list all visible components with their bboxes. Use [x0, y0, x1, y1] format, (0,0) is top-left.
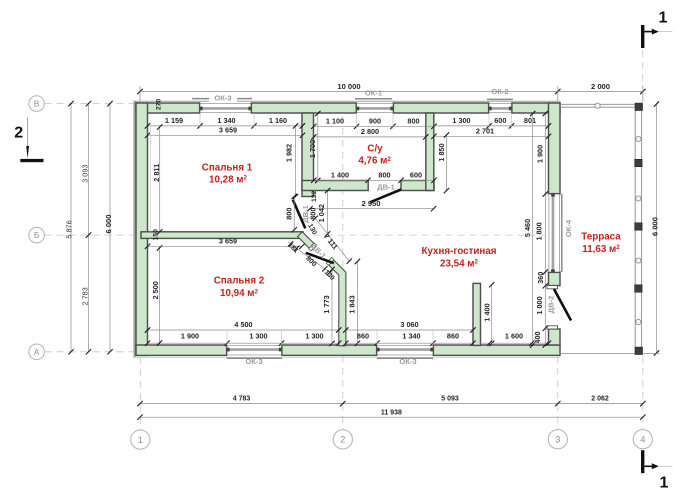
svg-text:ОК-4: ОК-4 [564, 219, 573, 237]
svg-text:800: 800 [285, 208, 294, 220]
svg-text:ОК-3: ОК-3 [245, 357, 262, 366]
svg-text:1 100: 1 100 [326, 116, 344, 125]
svg-text:1 300: 1 300 [452, 116, 470, 125]
svg-text:1 700: 1 700 [308, 140, 317, 158]
svg-text:ДВ-2: ДВ-2 [547, 296, 556, 314]
svg-text:5 460: 5 460 [523, 219, 532, 237]
svg-text:150: 150 [153, 229, 160, 241]
svg-text:1 982: 1 982 [284, 144, 293, 162]
svg-text:1 159: 1 159 [165, 116, 183, 125]
svg-text:1 400: 1 400 [331, 171, 349, 180]
svg-text:2 950: 2 950 [361, 199, 380, 208]
svg-text:1 042: 1 042 [317, 204, 326, 222]
svg-text:11,63 м2: 11,63 м2 [582, 244, 620, 255]
svg-text:ОК-3: ОК-3 [399, 357, 416, 366]
svg-text:1: 1 [659, 10, 668, 27]
svg-text:2: 2 [14, 125, 23, 142]
svg-text:ОК-1: ОК-1 [365, 88, 383, 97]
svg-text:1 800: 1 800 [534, 222, 543, 240]
svg-text:860: 860 [357, 331, 369, 340]
svg-text:10 000: 10 000 [337, 82, 360, 91]
svg-text:1 600: 1 600 [505, 331, 523, 340]
svg-text:5 093: 5 093 [441, 396, 459, 403]
svg-text:1 340: 1 340 [402, 331, 420, 340]
svg-text:900: 900 [369, 116, 381, 125]
svg-text:Кухня-гостиная: Кухня-гостиная [421, 246, 496, 257]
svg-text:11 938: 11 938 [381, 409, 402, 416]
svg-text:ДВ-1: ДВ-1 [377, 182, 395, 191]
svg-text:4,76 м2: 4,76 м2 [358, 156, 391, 167]
svg-text:1 850: 1 850 [437, 143, 446, 161]
svg-text:23,54 м2: 23,54 м2 [440, 258, 479, 269]
svg-text:600: 600 [494, 116, 506, 125]
svg-text:800: 800 [407, 116, 419, 125]
svg-text:А: А [34, 347, 40, 357]
svg-text:1: 1 [138, 435, 143, 445]
svg-text:2 500: 2 500 [151, 281, 160, 299]
svg-text:4 783: 4 783 [233, 396, 251, 403]
svg-text:270: 270 [155, 99, 162, 111]
svg-text:С/у: С/у [367, 143, 383, 154]
svg-text:1 300: 1 300 [305, 331, 323, 340]
svg-text:800: 800 [378, 171, 390, 180]
svg-text:10,94 м2: 10,94 м2 [220, 288, 259, 299]
svg-text:600: 600 [410, 171, 422, 180]
svg-text:1 900: 1 900 [181, 331, 199, 340]
svg-text:Спальня 2: Спальня 2 [214, 276, 265, 287]
svg-text:ОК-3: ОК-3 [214, 94, 231, 103]
svg-text:В: В [34, 99, 40, 109]
svg-text:1 340: 1 340 [217, 116, 235, 125]
svg-text:2 000: 2 000 [591, 82, 610, 91]
svg-text:1 000: 1 000 [535, 296, 544, 314]
svg-text:132: 132 [311, 190, 318, 202]
svg-text:1 773: 1 773 [322, 295, 331, 313]
svg-text:2 811: 2 811 [152, 164, 161, 182]
svg-text:400: 400 [533, 331, 542, 343]
svg-text:2 701: 2 701 [476, 127, 494, 136]
svg-text:Б: Б [34, 230, 40, 240]
svg-text:860: 860 [447, 331, 459, 340]
svg-text:1: 1 [660, 474, 669, 491]
svg-text:5 876: 5 876 [65, 220, 74, 238]
svg-text:1 300: 1 300 [249, 331, 267, 340]
svg-text:2 800: 2 800 [361, 127, 379, 136]
svg-text:1 843: 1 843 [347, 295, 356, 313]
svg-text:6 000: 6 000 [104, 214, 113, 233]
svg-text:360: 360 [536, 272, 545, 284]
svg-text:3: 3 [555, 435, 560, 445]
svg-text:2: 2 [340, 435, 345, 445]
svg-text:1 900: 1 900 [536, 145, 545, 163]
svg-text:4: 4 [640, 435, 645, 445]
svg-text:3 093: 3 093 [81, 165, 90, 183]
svg-text:1 400: 1 400 [482, 303, 491, 321]
svg-text:10,28 м2: 10,28 м2 [209, 174, 248, 185]
svg-text:3 060: 3 060 [400, 320, 418, 329]
svg-text:1 160: 1 160 [269, 116, 287, 125]
svg-text:3 659: 3 659 [219, 126, 237, 135]
svg-text:Спальня 1: Спальня 1 [202, 163, 253, 174]
svg-text:3 659: 3 659 [219, 237, 237, 246]
svg-text:2 062: 2 062 [591, 396, 609, 403]
svg-text:801: 801 [524, 116, 536, 125]
svg-text:Терраса: Терраса [581, 231, 621, 242]
svg-text:4 500: 4 500 [234, 320, 252, 329]
svg-text:2 783: 2 783 [81, 287, 90, 305]
svg-text:6 000: 6 000 [651, 217, 660, 236]
